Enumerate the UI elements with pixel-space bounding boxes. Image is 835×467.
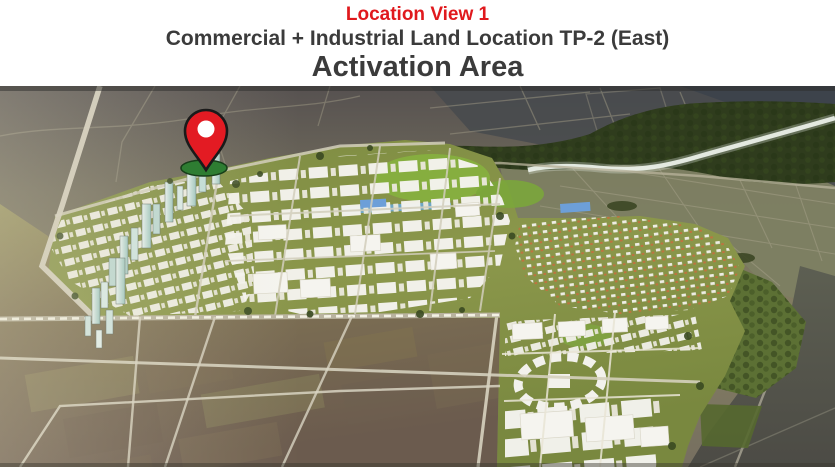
location-view-title: Location View 1: [346, 3, 489, 26]
pin-hole: [198, 121, 215, 138]
masterplan-map-render: [0, 86, 835, 467]
slide-header: Location View 1 Commercial + Industrial …: [0, 0, 835, 86]
activation-area-title: Activation Area: [312, 51, 524, 84]
map-svg: [0, 86, 835, 467]
location-pin: [181, 110, 227, 176]
slide-page: Location View 1 Commercial + Industrial …: [0, 0, 835, 467]
land-location-subtitle: Commercial + Industrial Land Location TP…: [166, 26, 670, 51]
